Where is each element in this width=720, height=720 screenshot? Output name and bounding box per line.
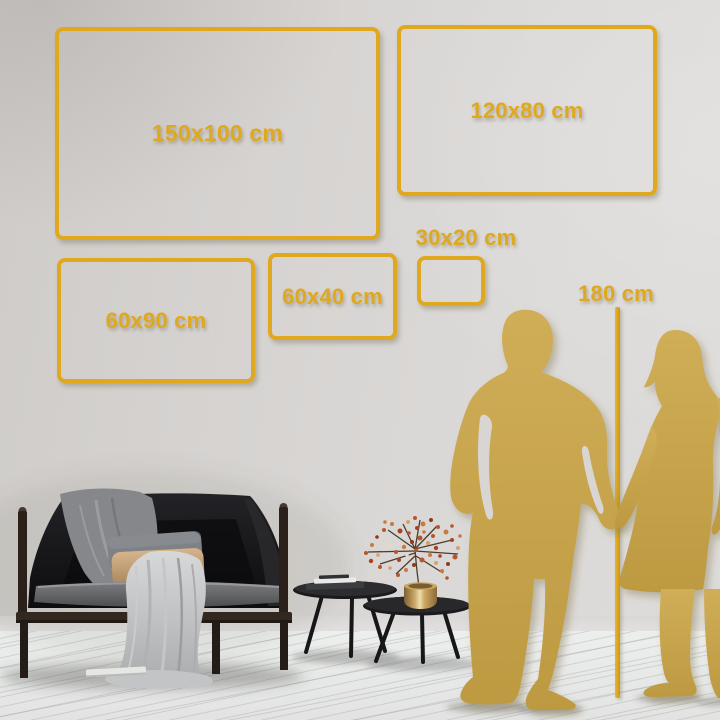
woman-silhouette bbox=[615, 330, 720, 698]
woman-right-leg-partial bbox=[704, 589, 720, 698]
woman-leg bbox=[643, 589, 696, 697]
couple-silhouettes bbox=[0, 0, 720, 720]
man-silhouette bbox=[450, 310, 620, 710]
size-guide-image: 150x100 cm 120x80 cm 60x90 cm 60x40 cm 3… bbox=[0, 0, 720, 720]
